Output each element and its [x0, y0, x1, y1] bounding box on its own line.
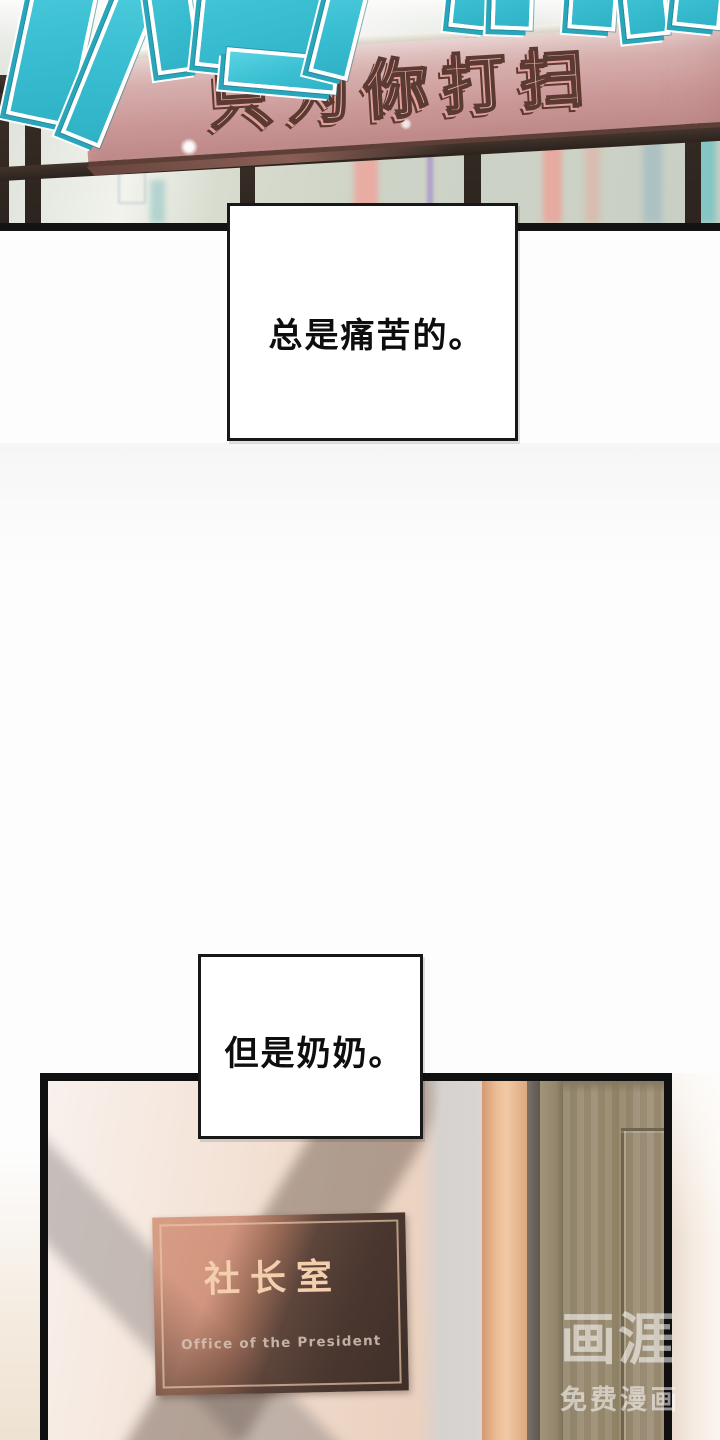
- caption-text: 总是痛苦的。: [261, 288, 485, 357]
- door-plaque-title: 社长室: [153, 1247, 383, 1304]
- panel-storefront: 只为你打扫: [0, 0, 720, 231]
- watermark-logo: 画涯: [560, 1310, 680, 1372]
- page-gap: [0, 443, 720, 565]
- door-frame-trim: [482, 1081, 527, 1440]
- caption-box-2: 但是奶奶。: [198, 954, 423, 1139]
- window-mullion: [0, 75, 9, 224]
- glass-reflection-streak: [150, 180, 165, 223]
- neon-glyph-fragment: [491, 0, 536, 31]
- watermark-tagline: 免费漫画: [560, 1378, 680, 1417]
- office-wall-corner: [420, 1081, 482, 1440]
- door-plaque-frame: [159, 1220, 401, 1389]
- light-glint: [180, 138, 198, 156]
- page-margin-tint: [0, 1150, 40, 1440]
- door-panel-moulding: [621, 1128, 664, 1131]
- door-top-shadow: [563, 1081, 664, 1093]
- comic-page: 只为你打扫 社长室 Office of the President: [0, 0, 720, 1440]
- neon-glyph-fragment: [567, 0, 620, 32]
- watermark: 画涯 免费漫画: [560, 1310, 680, 1417]
- door-frame-groove: [527, 1081, 540, 1440]
- caption-box-1: 总是痛苦的。: [227, 203, 518, 441]
- caption-text: 但是奶奶。: [217, 1018, 405, 1075]
- neon-glyph-fragment: [672, 0, 720, 30]
- door-plaque: 社长室 Office of the President: [152, 1212, 409, 1395]
